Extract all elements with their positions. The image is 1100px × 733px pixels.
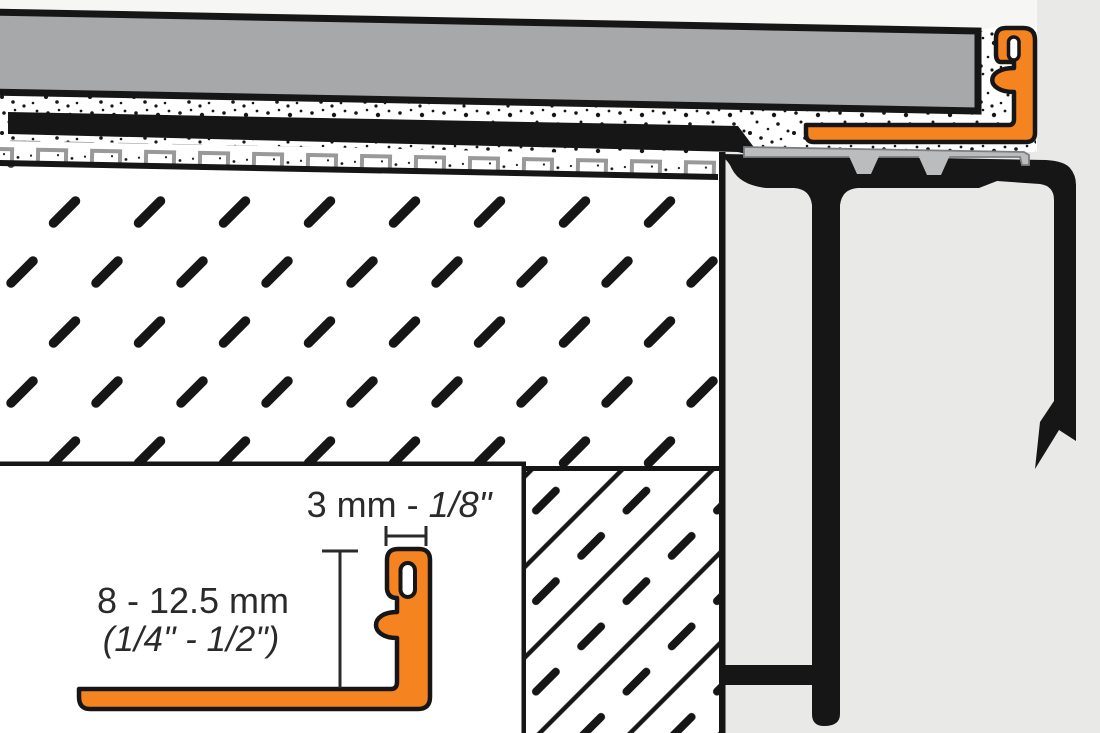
concrete-substrate-hatch (526, 467, 722, 733)
screed-substrate-hatch (0, 166, 720, 478)
profile-height-label-imperial: (1/4" - 1/2") (103, 620, 280, 659)
inset-border-top (0, 462, 526, 467)
edge-profile-cross-section: 3 mm - 1/8" 8 - 12.5 mm (1/4" - 1/2") (0, 0, 1100, 733)
profile-hook-slot (1009, 37, 1020, 60)
technical-drawing-canvas: 3 mm - 1/8" 8 - 12.5 mm (1/4" - 1/2") (0, 0, 1100, 733)
profile-height-label-metric: 8 - 12.5 mm (97, 580, 289, 621)
inset-border-right (522, 462, 527, 733)
support-bracket-arm (722, 665, 814, 685)
profile-width-label: 3 mm - 1/8" (307, 484, 494, 525)
profile-hook-slot-enlarged (401, 563, 416, 597)
tile (0, 12, 978, 111)
slab-edge-face-line (719, 152, 726, 733)
concrete-boundary-line (526, 466, 722, 471)
